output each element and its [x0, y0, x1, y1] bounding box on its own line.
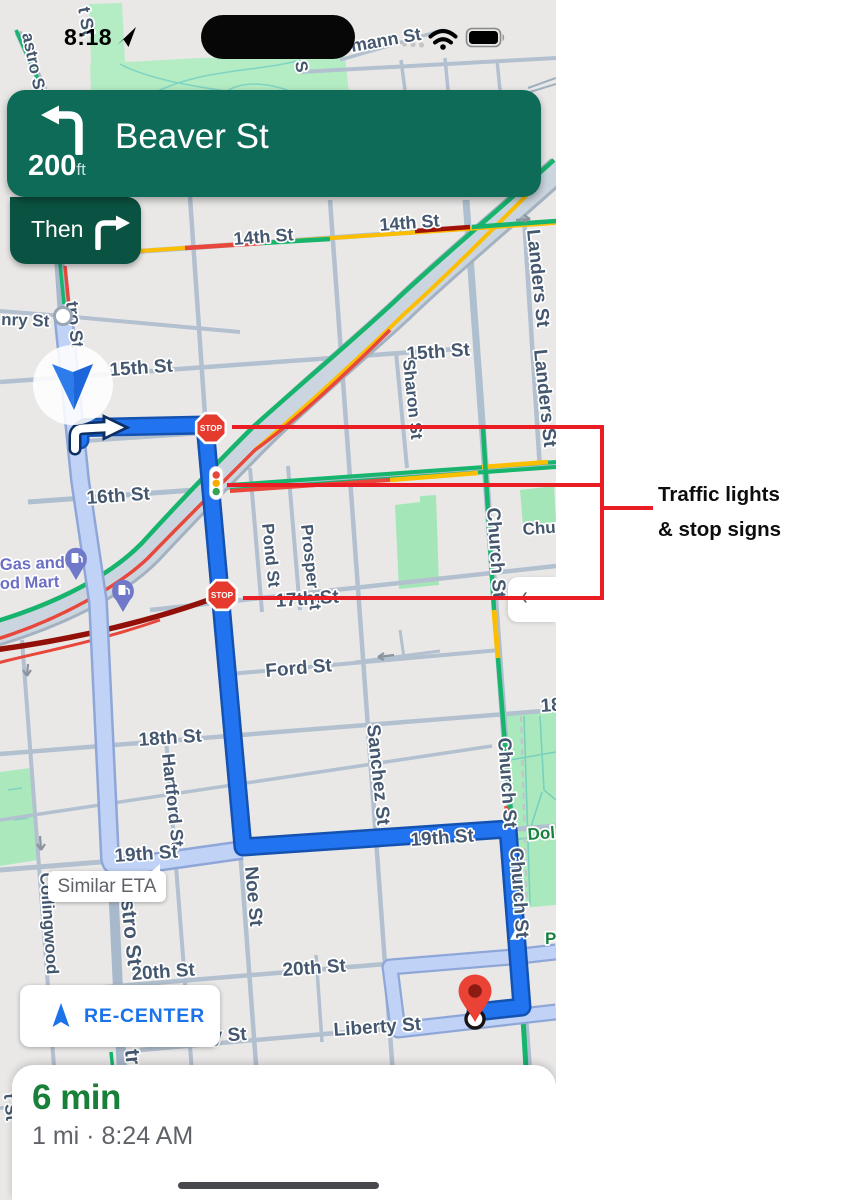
svg-text:Gas and: Gas and — [0, 554, 65, 574]
svg-text:19th St: 19th St — [114, 842, 179, 867]
svg-text:15th St: 15th St — [109, 356, 174, 381]
svg-text:20th St: 20th St — [131, 960, 196, 985]
svg-text:Dol: Dol — [527, 823, 556, 844]
svg-text:18: 18 — [540, 695, 556, 717]
svg-text:18th St: 18th St — [138, 726, 203, 751]
svg-text:16th St: 16th St — [86, 484, 151, 509]
svg-text:nry St: nry St — [1, 310, 50, 331]
svg-text:20th St: 20th St — [282, 956, 347, 981]
svg-text:od Mart: od Mart — [0, 573, 60, 593]
svg-text:P: P — [545, 929, 556, 948]
svg-text:Church: Church — [522, 516, 556, 539]
svg-text:19th St: 19th St — [410, 826, 475, 851]
